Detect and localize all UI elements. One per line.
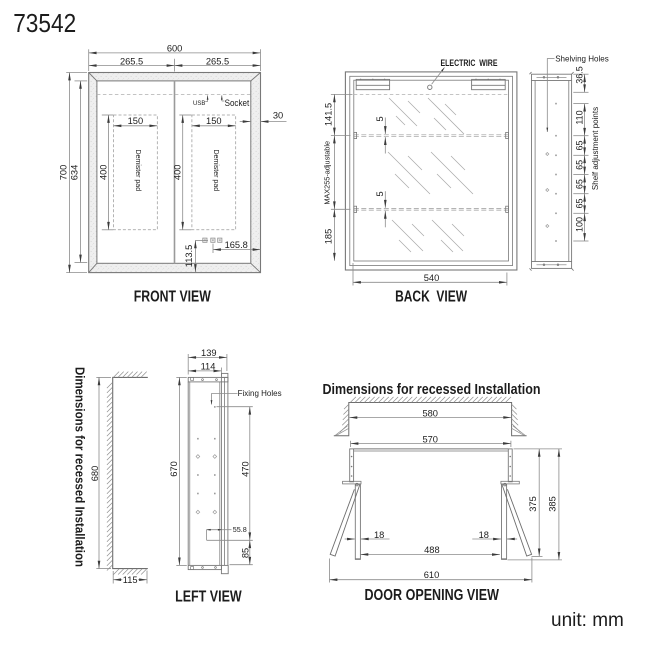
- svg-text:FRONT VIEW: FRONT VIEW: [134, 288, 211, 305]
- svg-text:36.5: 36.5: [574, 66, 584, 84]
- svg-text:85: 85: [241, 548, 251, 558]
- svg-text:55.8: 55.8: [233, 525, 247, 534]
- svg-text:580: 580: [422, 408, 438, 418]
- svg-text:115: 115: [123, 575, 138, 585]
- svg-text:488: 488: [424, 545, 440, 555]
- svg-text:165.8: 165.8: [225, 240, 248, 250]
- svg-text:540: 540: [424, 273, 440, 283]
- svg-text:USB: USB: [193, 101, 205, 107]
- svg-text:Demister pad: Demister pad: [134, 149, 141, 191]
- svg-text:400: 400: [173, 165, 183, 181]
- svg-text:73542: 73542: [13, 10, 76, 38]
- svg-text:670: 670: [169, 461, 179, 477]
- svg-text:65: 65: [574, 198, 584, 208]
- svg-text:unit: mm: unit: mm: [551, 610, 624, 631]
- svg-text:139: 139: [201, 348, 217, 358]
- svg-text:634: 634: [69, 165, 79, 181]
- svg-text:65: 65: [574, 160, 584, 170]
- svg-text:385: 385: [548, 496, 558, 512]
- svg-text:680: 680: [90, 466, 100, 482]
- svg-text:150: 150: [206, 116, 222, 126]
- svg-text:Demister pad: Demister pad: [212, 149, 219, 191]
- svg-text:65: 65: [574, 140, 584, 150]
- svg-text:375: 375: [528, 496, 538, 512]
- svg-text:BACK VIEW: BACK VIEW: [395, 288, 467, 305]
- svg-text:265.5: 265.5: [120, 56, 143, 66]
- svg-text:18: 18: [374, 530, 384, 540]
- svg-text:114: 114: [201, 362, 216, 372]
- svg-text:65: 65: [574, 179, 584, 189]
- svg-text:MAX255-adjustable: MAX255-adjustable: [323, 141, 332, 205]
- svg-text:141.5: 141.5: [323, 103, 333, 126]
- svg-text:700: 700: [59, 165, 69, 181]
- svg-text:610: 610: [424, 570, 440, 580]
- svg-text:265.5: 265.5: [206, 56, 229, 66]
- svg-text:ELECTRIC WIRE: ELECTRIC WIRE: [441, 58, 498, 68]
- svg-text:30: 30: [273, 111, 283, 121]
- svg-text:113.5: 113.5: [184, 245, 194, 268]
- svg-text:5: 5: [375, 191, 385, 196]
- svg-text:LEFT VIEW: LEFT VIEW: [175, 589, 242, 606]
- svg-text:600: 600: [167, 44, 183, 54]
- svg-text:100: 100: [574, 217, 584, 232]
- svg-text:185: 185: [323, 229, 333, 245]
- svg-text:Dimensions for recessed Instal: Dimensions for recessed Installation: [72, 367, 86, 567]
- svg-text:470: 470: [241, 461, 251, 477]
- svg-text:Socket: Socket: [225, 98, 250, 108]
- svg-text:110: 110: [574, 110, 584, 124]
- svg-text:400: 400: [98, 165, 108, 181]
- svg-text:Shelf adjustment points: Shelf adjustment points: [591, 107, 600, 190]
- svg-text:Fixing Holes: Fixing Holes: [238, 388, 282, 398]
- svg-text:150: 150: [128, 116, 144, 126]
- svg-text:DOOR OPENING VIEW: DOOR OPENING VIEW: [365, 587, 500, 604]
- svg-text:Dimensions for recessed Instal: Dimensions for recessed Installation: [323, 382, 541, 398]
- svg-text:18: 18: [479, 530, 489, 540]
- svg-text:Shelving Holes: Shelving Holes: [555, 53, 609, 63]
- svg-text:570: 570: [422, 434, 438, 444]
- svg-text:5: 5: [375, 116, 385, 121]
